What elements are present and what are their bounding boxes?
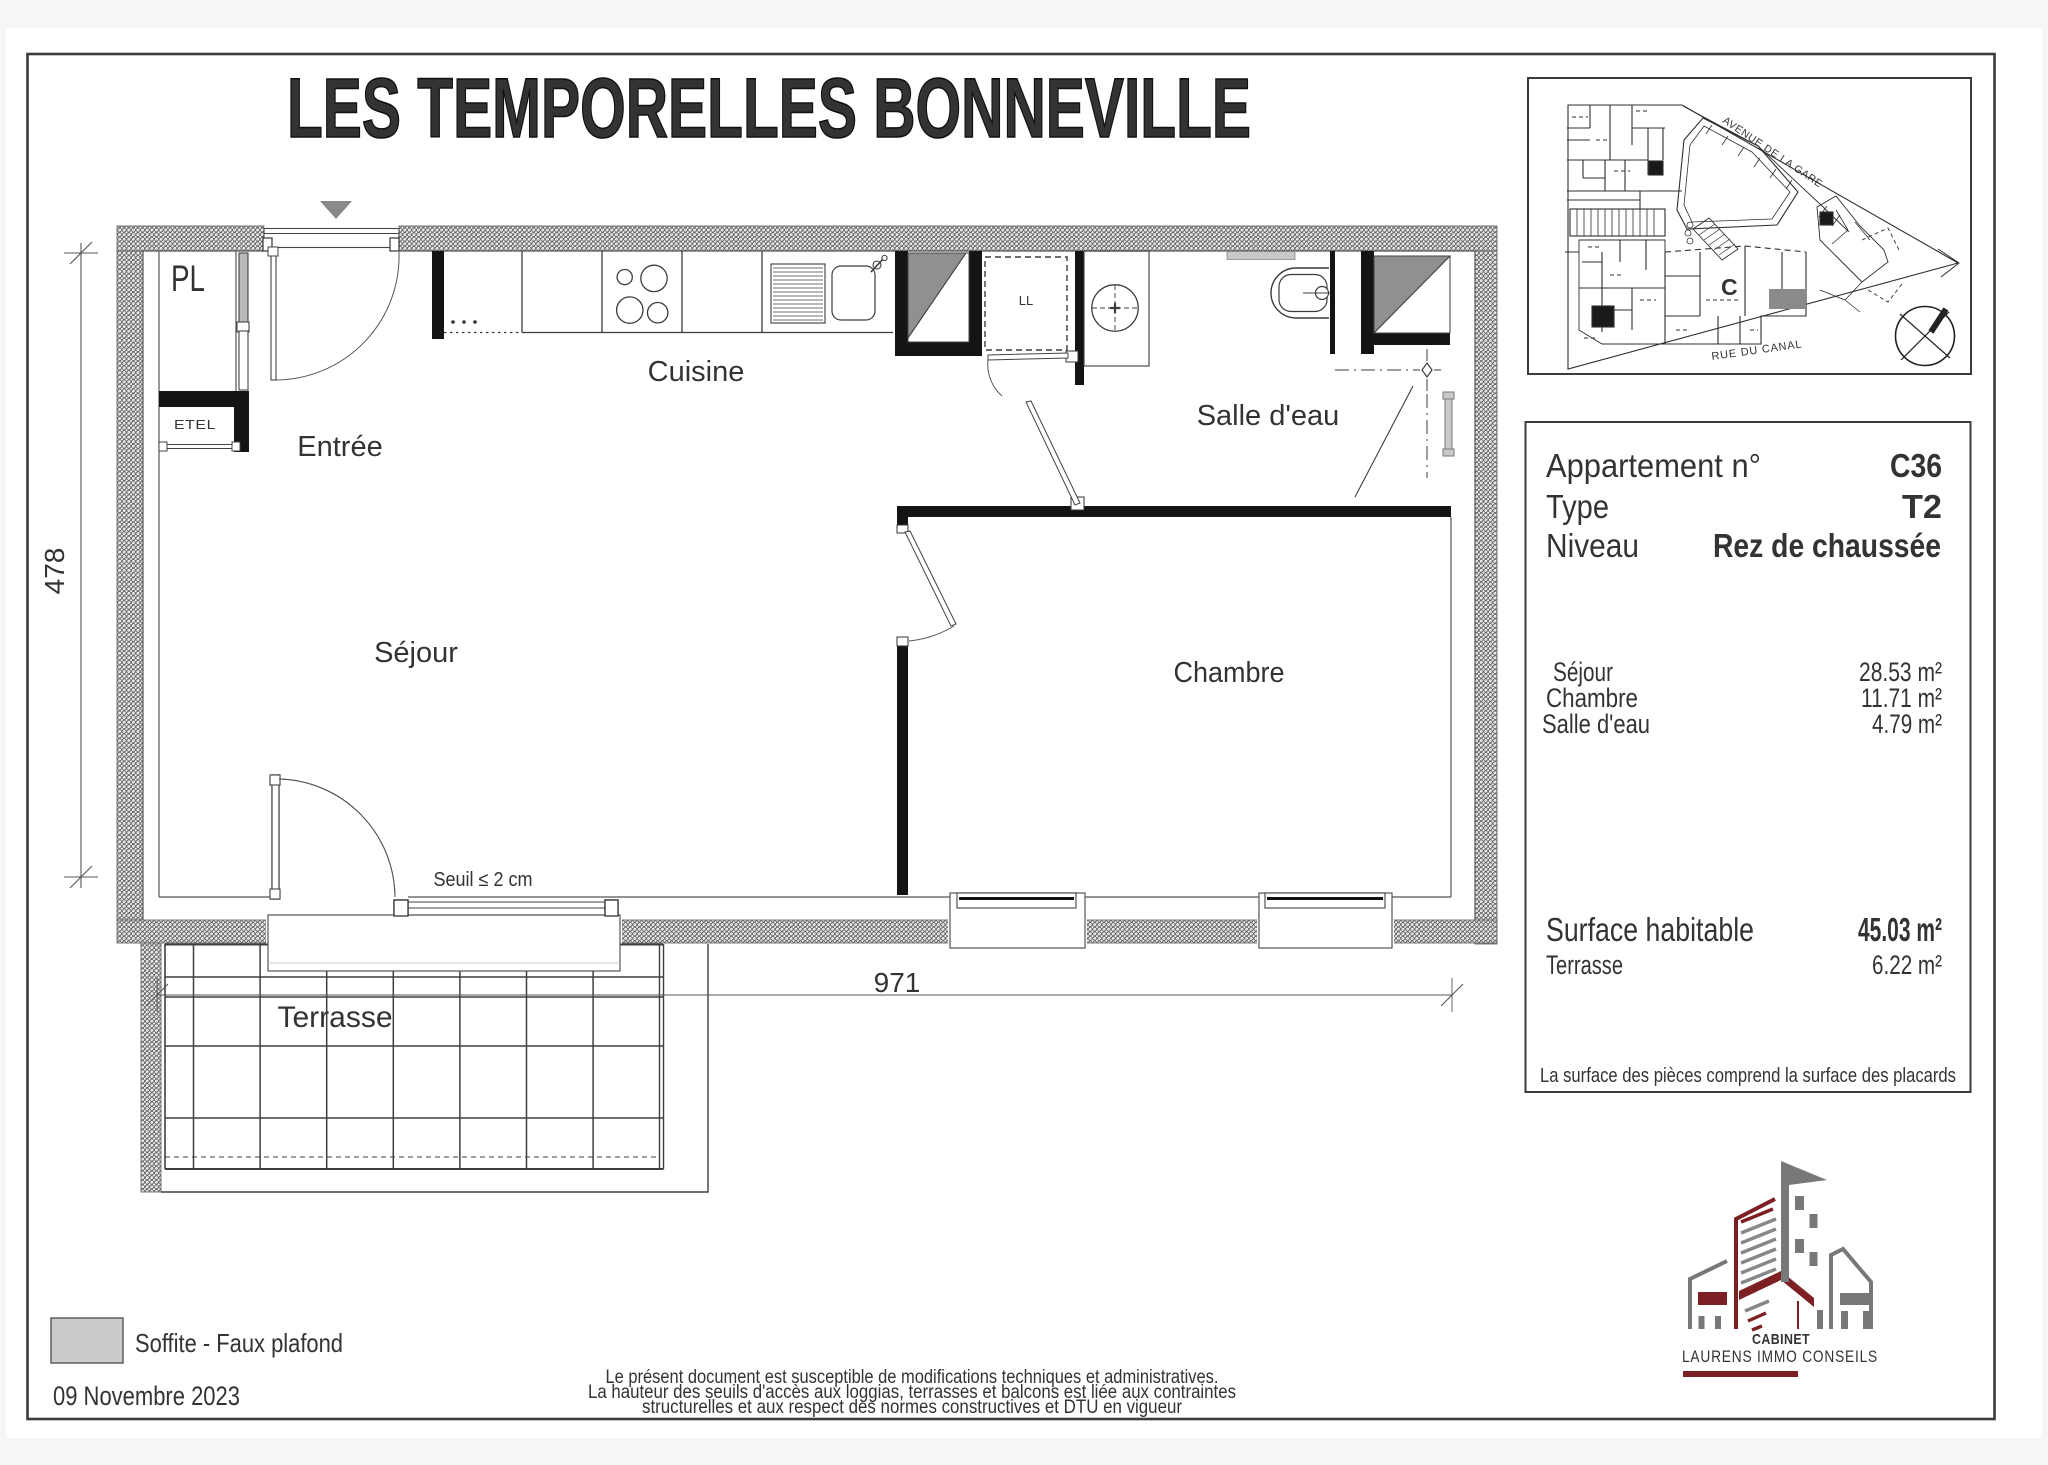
svg-text:structurelles et aux respect d: structurelles et aux respect des normes … bbox=[642, 1397, 1183, 1418]
svg-text:971: 971 bbox=[874, 967, 921, 998]
svg-text:Surface habitable: Surface habitable bbox=[1546, 911, 1754, 948]
svg-text:Entrée: Entrée bbox=[297, 431, 382, 463]
svg-text:Rez de chaussée: Rez de chaussée bbox=[1713, 527, 1941, 564]
svg-text:Seuil ≤ 2 cm: Seuil ≤ 2 cm bbox=[434, 869, 533, 891]
svg-text:PL: PL bbox=[171, 258, 205, 299]
svg-text:C36: C36 bbox=[1890, 447, 1942, 484]
svg-text:T2: T2 bbox=[1902, 488, 1942, 525]
svg-text:Cuisine: Cuisine bbox=[648, 356, 745, 388]
svg-text:Terrasse: Terrasse bbox=[1546, 950, 1623, 980]
svg-text:La surface des pièces comprend: La surface des pièces comprend la surfac… bbox=[1540, 1064, 1956, 1087]
svg-text:ETEL: ETEL bbox=[174, 418, 216, 432]
svg-text:4.79 m²: 4.79 m² bbox=[1872, 709, 1942, 739]
svg-text:Séjour: Séjour bbox=[374, 637, 458, 669]
svg-text:LES TEMPORELLES BONNEVILLE: LES TEMPORELLES BONNEVILLE bbox=[287, 61, 1251, 155]
svg-text:6.22 m²: 6.22 m² bbox=[1872, 950, 1942, 980]
svg-text:Type: Type bbox=[1546, 488, 1609, 525]
svg-text:LAURENS IMMO CONSEILS: LAURENS IMMO CONSEILS bbox=[1682, 1347, 1878, 1366]
svg-text:C: C bbox=[1721, 274, 1738, 300]
svg-text:Appartement n°: Appartement n° bbox=[1546, 447, 1761, 484]
svg-text:478: 478 bbox=[39, 548, 70, 595]
svg-text:Chambre: Chambre bbox=[1174, 657, 1285, 689]
svg-text:45.03 m²: 45.03 m² bbox=[1858, 911, 1942, 948]
svg-text:Salle d'eau: Salle d'eau bbox=[1197, 400, 1340, 432]
svg-text:CABINET: CABINET bbox=[1752, 1331, 1810, 1348]
svg-text:Salle d'eau: Salle d'eau bbox=[1542, 709, 1650, 739]
svg-text:09 Novembre 2023: 09 Novembre 2023 bbox=[53, 1381, 240, 1411]
svg-text:Terrasse: Terrasse bbox=[277, 1001, 392, 1034]
svg-text:Niveau: Niveau bbox=[1546, 527, 1639, 564]
svg-text:LL: LL bbox=[1019, 293, 1033, 308]
svg-text:Soffite - Faux plafond: Soffite - Faux plafond bbox=[135, 1328, 343, 1358]
